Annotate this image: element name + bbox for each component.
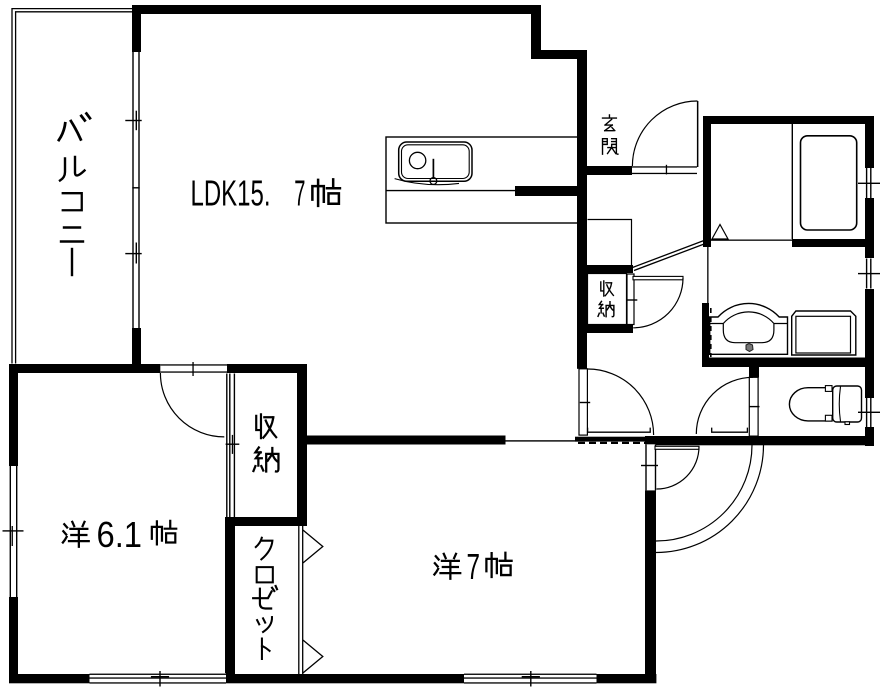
svg-text:7: 7	[294, 173, 305, 214]
svg-text:LDK15.: LDK15.	[191, 173, 271, 214]
svg-text:7: 7	[467, 546, 481, 587]
svg-text:6.1: 6.1	[97, 514, 143, 555]
